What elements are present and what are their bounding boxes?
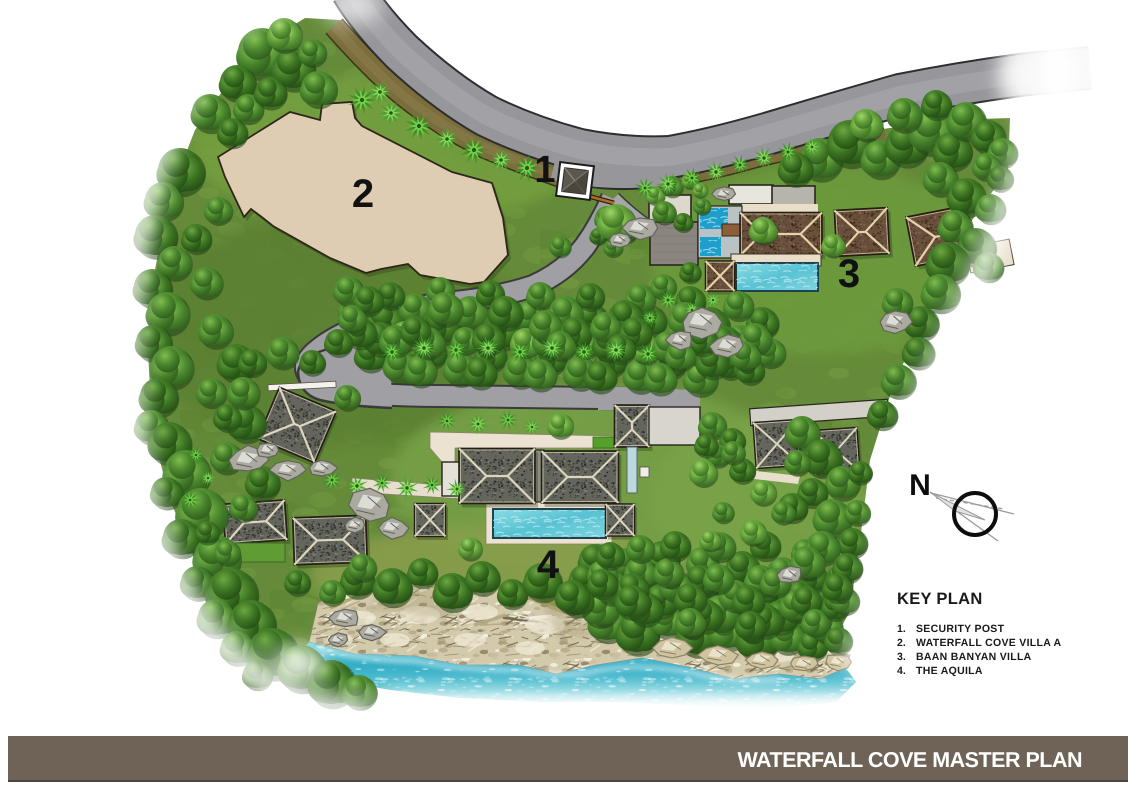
svg-text:4: 4 bbox=[537, 543, 560, 587]
svg-text:3: 3 bbox=[838, 252, 860, 296]
svg-text:WATERFALL COVE VILLA A: WATERFALL COVE VILLA A bbox=[916, 637, 1062, 649]
svg-text:3.: 3. bbox=[897, 651, 906, 663]
svg-text:2: 2 bbox=[352, 172, 374, 216]
svg-text:N: N bbox=[909, 469, 931, 502]
svg-text:KEY PLAN: KEY PLAN bbox=[897, 590, 983, 608]
svg-text:4.: 4. bbox=[897, 665, 906, 677]
svg-text:2.: 2. bbox=[897, 637, 906, 649]
svg-text:WATERFALL COVE MASTER PLAN: WATERFALL COVE MASTER PLAN bbox=[737, 748, 1082, 772]
svg-text:1.: 1. bbox=[897, 623, 906, 635]
svg-text:1: 1 bbox=[534, 149, 555, 191]
svg-text:BAAN BANYAN VILLA: BAAN BANYAN VILLA bbox=[916, 651, 1032, 663]
svg-text:THE AQUILA: THE AQUILA bbox=[916, 665, 983, 677]
svg-text:SECURITY POST: SECURITY POST bbox=[916, 623, 1005, 635]
